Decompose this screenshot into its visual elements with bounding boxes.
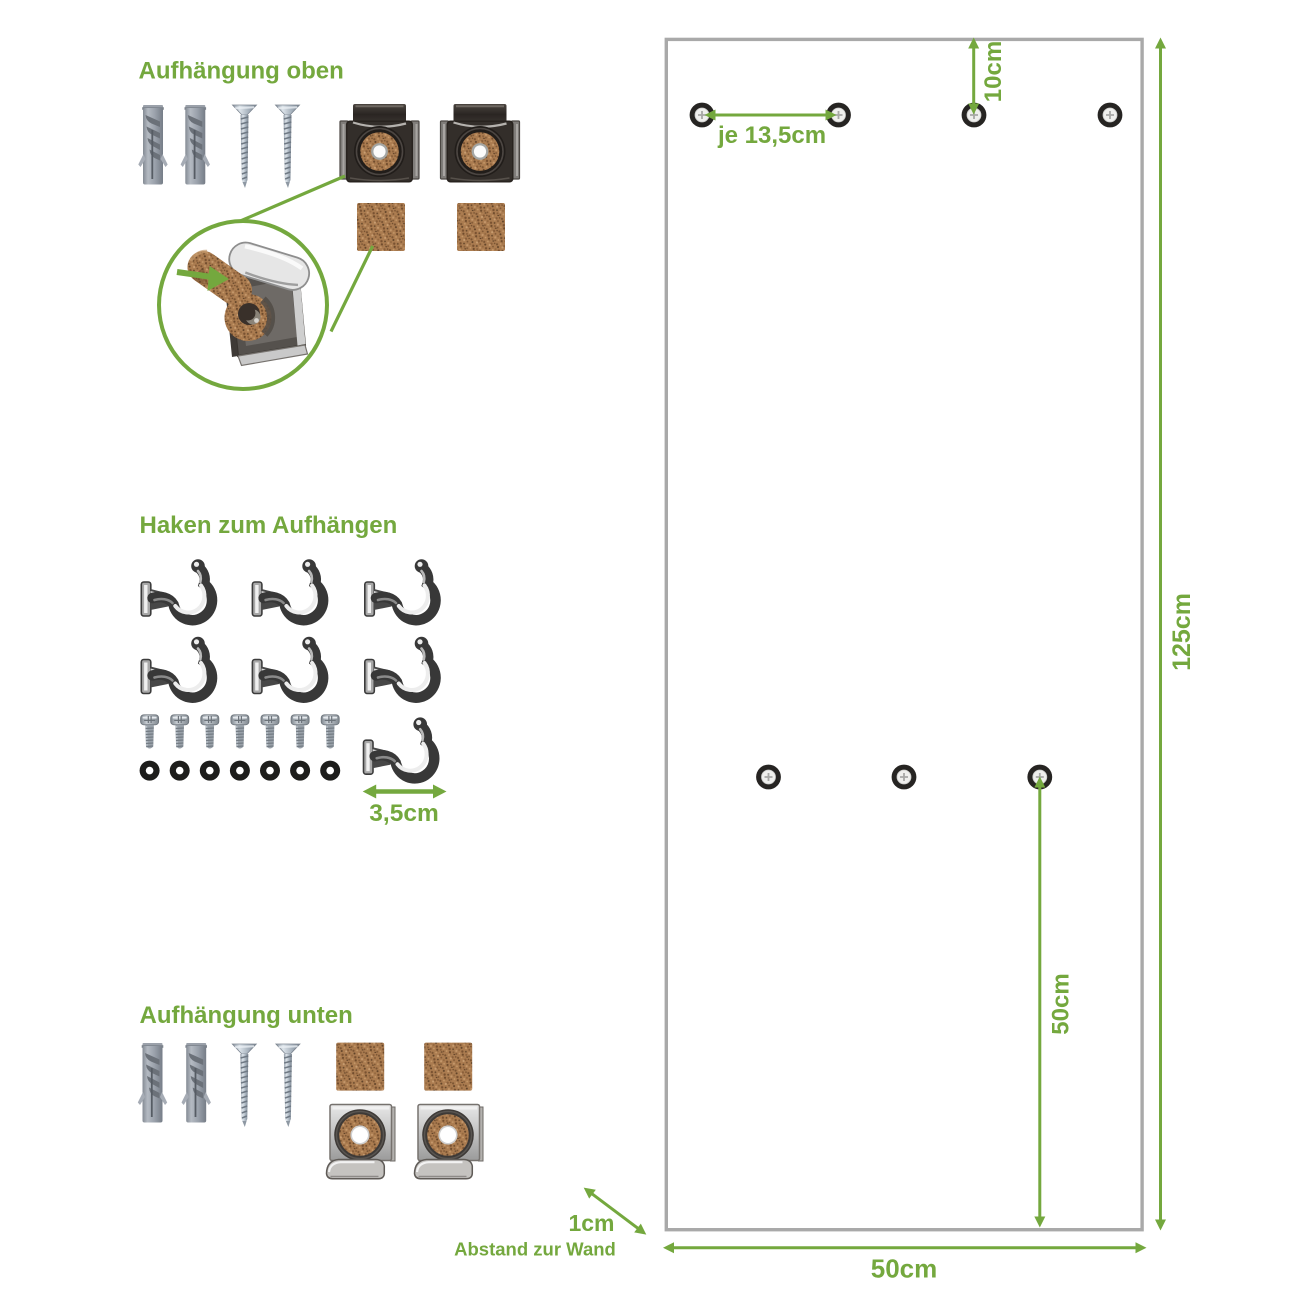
svg-text:50cm: 50cm bbox=[871, 1254, 938, 1284]
svg-text:je 13,5cm: je 13,5cm bbox=[717, 122, 826, 149]
svg-text:10cm: 10cm bbox=[980, 41, 1007, 102]
svg-text:Aufhängung unten: Aufhängung unten bbox=[140, 1002, 353, 1029]
svg-text:3,5cm: 3,5cm bbox=[369, 800, 438, 827]
svg-text:125cm: 125cm bbox=[1168, 593, 1196, 671]
svg-text:50cm: 50cm bbox=[1048, 973, 1075, 1034]
svg-text:1cm: 1cm bbox=[568, 1210, 614, 1236]
svg-text:Aufhängung oben: Aufhängung oben bbox=[139, 58, 344, 85]
svg-text:Haken zum Aufhängen: Haken zum Aufhängen bbox=[140, 512, 398, 539]
svg-text:Abstand zur Wand: Abstand zur Wand bbox=[454, 1239, 616, 1260]
